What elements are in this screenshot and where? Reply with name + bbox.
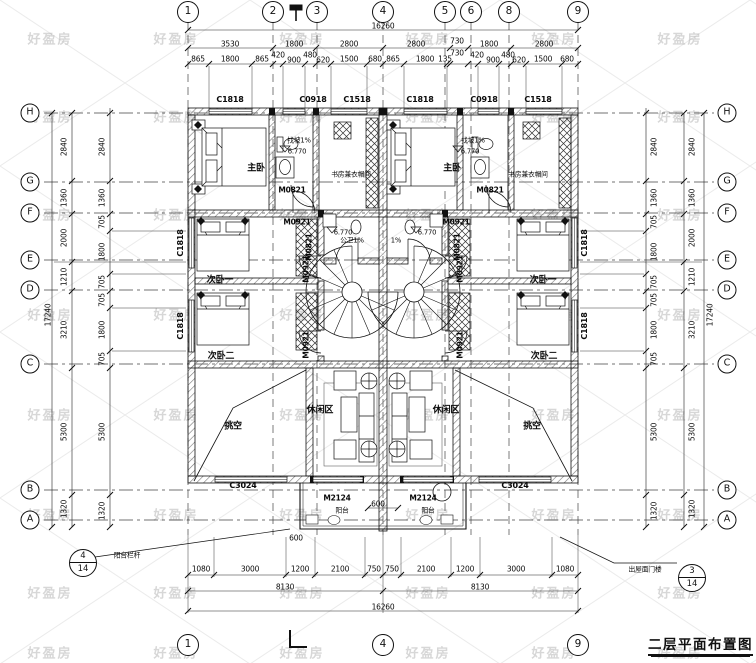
dimension-label: 1080: [192, 565, 210, 573]
dimension-label: 1360: [650, 189, 658, 207]
dimension-label: 600: [289, 534, 303, 542]
dimension-label: 1360: [688, 189, 696, 207]
dimension-label: 1800: [285, 40, 303, 48]
window-label: C1818: [177, 229, 185, 256]
drawing-title: 二层平面布置图: [648, 633, 753, 656]
dimension-label: 2000: [60, 229, 68, 247]
grid-bubble-F: F: [718, 204, 737, 223]
dimension-label: 2840: [60, 138, 68, 156]
annotation-label: 6.770: [334, 230, 352, 237]
annotation-label: 6.770: [288, 149, 306, 156]
grid-bubble-1: 1: [177, 1, 199, 23]
room-label: 次卧二: [531, 353, 557, 362]
grid-bubble-H: H: [718, 104, 737, 123]
grid-bubble-E: E: [21, 251, 40, 270]
dimension-label: 1320: [60, 500, 68, 518]
dimension-label: 705: [98, 352, 106, 366]
grid-bubble-C: C: [718, 355, 737, 374]
dimension-label: 1320: [688, 500, 696, 518]
window-label: C0918: [470, 96, 497, 104]
door-label: M0821: [278, 186, 305, 194]
dimension-label: 1800: [98, 321, 106, 339]
dimension-label: 2840: [98, 138, 106, 156]
dimension-label: 900: [486, 56, 500, 64]
window-label: C1818: [581, 229, 589, 256]
grid-bubble-G: G: [21, 173, 40, 192]
dimension-label: 2840: [650, 138, 658, 156]
dimension-label: 420: [470, 51, 484, 59]
dimension-label: 705: [650, 293, 658, 307]
door-label: M0821: [476, 186, 503, 194]
annotation-label: 6.770: [418, 230, 436, 237]
label-layer: 1626035301800280028007301800280086518008…: [0, 0, 756, 663]
dimension-label: 1800: [221, 55, 239, 63]
grid-bubble-G: G: [718, 173, 737, 192]
dimension-label: 5300: [688, 423, 696, 441]
annotation-label: 公卫1%: [340, 238, 364, 245]
dimension-label: 5300: [60, 423, 68, 441]
grid-bubble-3: 3: [306, 1, 328, 23]
grid-bubble-A: A: [21, 511, 40, 530]
annotation-label: 阳台: [335, 508, 348, 515]
dimension-label: 2100: [417, 565, 435, 573]
window-label: C3024: [501, 482, 528, 490]
dimension-label: 1800: [416, 55, 434, 63]
window-label: C1818: [581, 312, 589, 339]
dimension-label: 1320: [650, 502, 658, 520]
grid-bubble-D: D: [718, 281, 737, 300]
window-label: C1518: [343, 96, 370, 104]
callout-number: 4: [70, 550, 96, 563]
annotation-label: 书房兼衣帽间: [331, 172, 371, 179]
dimension-label: 1800: [650, 321, 658, 339]
door-label: M0921: [456, 331, 464, 358]
annotation-label: 阳台: [421, 508, 434, 515]
callout-sheet: 14: [70, 563, 96, 575]
dimension-label: 680: [560, 55, 574, 63]
room-label: 休闲区: [307, 407, 333, 416]
callout-number: 3: [679, 565, 705, 578]
dimension-label: 5300: [650, 423, 658, 441]
dimension-label: 705: [98, 293, 106, 307]
dimension-label: 1500: [534, 55, 552, 63]
grid-bubble-B: B: [718, 481, 737, 500]
grid-bubble-2: 2: [262, 1, 284, 23]
grid-bubble-4: 4: [372, 1, 394, 23]
dimension-label: 5300: [98, 423, 106, 441]
window-label: C1818: [406, 96, 433, 104]
dimension-label: 1210: [688, 268, 696, 286]
dimension-label: 705: [650, 275, 658, 289]
grid-bubble-5: 5: [434, 1, 456, 23]
dimension-label: 1800: [650, 243, 658, 261]
dimension-label: 3530: [221, 40, 239, 48]
dimension-label: 2100: [331, 565, 349, 573]
dimension-label: 1320: [98, 502, 106, 520]
dimension-label: 3000: [507, 565, 525, 573]
room-label: 次卧一: [207, 277, 233, 286]
dimension-label: 730: [450, 49, 464, 57]
dimension-label: 620: [512, 56, 526, 64]
grid-bubble-E: E: [718, 251, 737, 270]
dimension-label: 480: [303, 51, 317, 59]
room-label: 主卧: [247, 165, 265, 174]
dimension-label: 2800: [407, 40, 425, 48]
dimension-label: 8130: [276, 583, 294, 591]
callout-sheet: 14: [679, 578, 705, 590]
dimension-label: 3000: [241, 565, 259, 573]
dimension-label: 1360: [60, 189, 68, 207]
annotation-label: 6.770: [461, 149, 479, 156]
dimension-label: 3210: [60, 321, 68, 339]
annotation-label: 找坡1%: [461, 138, 485, 145]
dimension-label: 3210: [688, 321, 696, 339]
dimension-label: 16260: [372, 22, 395, 30]
dimension-label: 705: [650, 215, 658, 229]
callout-text: 出屋面门楼: [629, 567, 662, 574]
door-label: M0921: [302, 331, 310, 358]
dimension-label: 2800: [535, 40, 553, 48]
door-label: M0921: [456, 255, 464, 282]
grid-bubble-A: A: [718, 511, 737, 530]
detail-callout-balcony-railing: 4 14: [69, 549, 97, 577]
window-label: C0918: [299, 96, 326, 104]
door-label: M2124: [323, 494, 350, 502]
dimension-label: 420: [271, 51, 285, 59]
grid-bubble-C: C: [21, 355, 40, 374]
door-label: M2124: [409, 494, 436, 502]
window-label: C1518: [524, 96, 551, 104]
grid-bubble-9: 9: [567, 1, 589, 23]
dimension-label: 1500: [340, 55, 358, 63]
dimension-label: 1800: [98, 243, 106, 261]
dimension-label: 620: [316, 56, 330, 64]
floorplan-sheet: 好盈房好盈房好盈房好盈房好盈房好盈房好盈房好盈房好盈房好盈房好盈房好盈房好盈房好…: [0, 0, 756, 663]
room-label: 挑空: [523, 423, 541, 432]
dimension-label: 2840: [688, 138, 696, 156]
grid-bubble-1: 1: [177, 634, 199, 656]
callout-text: 阳台栏杆: [114, 553, 140, 560]
grid-bubble-D: D: [21, 281, 40, 300]
dimension-label: 750: [385, 565, 399, 573]
room-label: 挑空: [224, 423, 242, 432]
dimension-label: 1080: [556, 565, 574, 573]
grid-bubble-H: H: [21, 104, 40, 123]
dimension-label: 705: [98, 215, 106, 229]
grid-bubble-4: 4: [372, 634, 394, 656]
dimension-label: 865: [386, 55, 400, 63]
dimension-label: 900: [287, 56, 301, 64]
grid-bubble-6: 6: [460, 1, 482, 23]
grid-bubble-B: B: [21, 481, 40, 500]
door-label: M0921: [442, 218, 469, 226]
window-label: C3024: [229, 482, 256, 490]
dimension-label: 1800: [480, 40, 498, 48]
dimension-label: 680: [368, 55, 382, 63]
annotation-label: 书房兼衣帽间: [508, 172, 548, 179]
room-label: 主卧: [443, 165, 461, 174]
grid-bubble-F: F: [21, 204, 40, 223]
dimension-label: 600: [371, 500, 385, 508]
window-label: C1818: [216, 96, 243, 104]
dimension-label: 1200: [456, 565, 474, 573]
annotation-label: 1%: [391, 238, 401, 245]
annotation-label: 找坡1%: [287, 138, 311, 145]
dimension-label: 1360: [98, 189, 106, 207]
dimension-label: 705: [98, 275, 106, 289]
grid-bubble-9: 9: [567, 634, 589, 656]
room-label: 次卧二: [208, 353, 234, 362]
dimension-label: 2800: [340, 40, 358, 48]
room-label: 次卧一: [530, 277, 556, 286]
door-label: M0921: [302, 255, 310, 282]
window-label: C1818: [177, 312, 185, 339]
dimension-label: 16260: [372, 603, 395, 611]
dimension-label: 750: [367, 565, 381, 573]
detail-callout-roof-door: 3 14: [678, 564, 706, 592]
dimension-label: 865: [191, 55, 205, 63]
dimension-label: 1200: [291, 565, 309, 573]
dimension-label: 8130: [471, 583, 489, 591]
grid-bubble-8: 8: [498, 1, 520, 23]
door-label: M0921: [283, 218, 310, 226]
dimension-label: 17240: [44, 304, 52, 327]
dimension-label: 17240: [706, 304, 714, 327]
dimension-label: 865: [255, 55, 269, 63]
dimension-label: 2000: [688, 229, 696, 247]
dimension-label: 1210: [60, 268, 68, 286]
room-label: 休闲区: [433, 407, 459, 416]
dimension-label: 730: [450, 37, 464, 45]
dimension-label: 705: [650, 352, 658, 366]
